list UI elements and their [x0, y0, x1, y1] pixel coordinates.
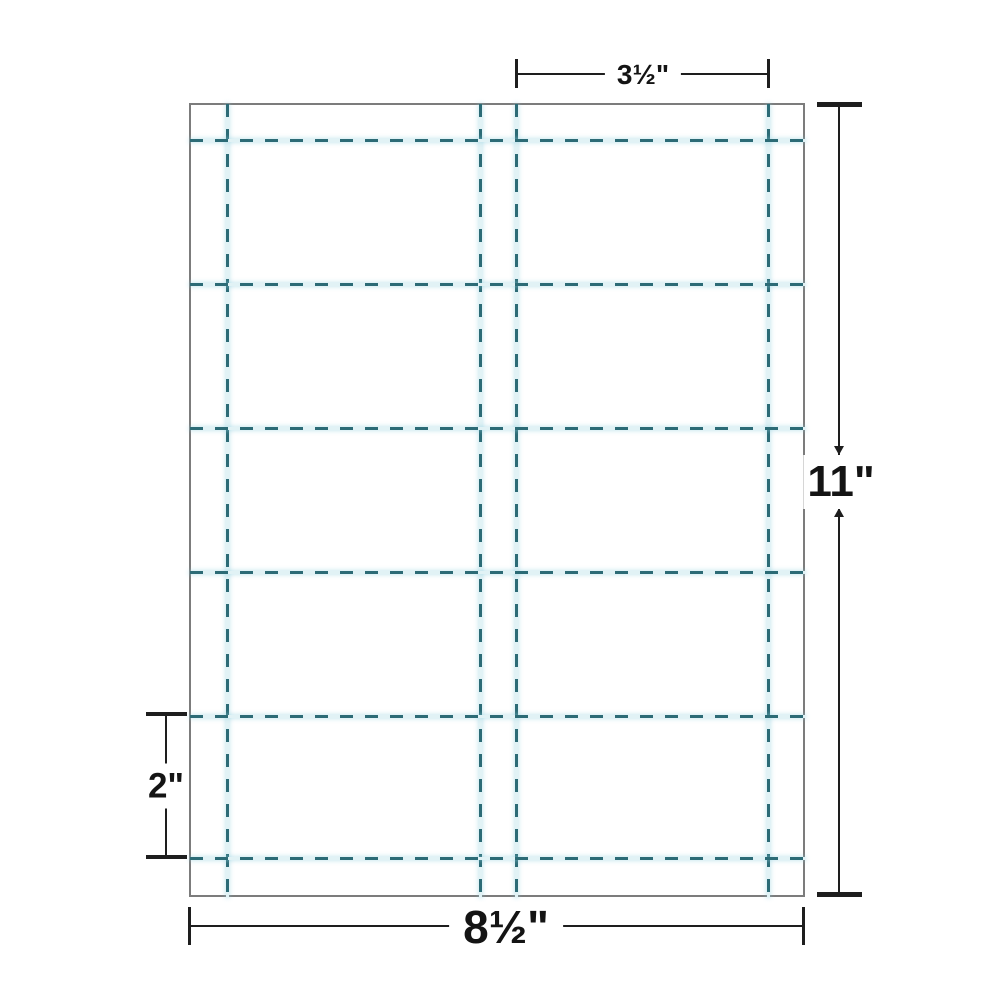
dimension-label-card-height: 2": [144, 764, 188, 809]
perforation-line-vertical-right-margin: [767, 104, 770, 897]
arrow-up-icon: [834, 508, 844, 517]
dimension-label-sheet-height: 11": [803, 455, 878, 509]
dimension-cap-card-height-top: [146, 712, 187, 716]
business-card-template-diagram: 3½" 11" 2" 8½": [0, 0, 1000, 1000]
perforation-line-horizontal-row-4: [190, 715, 805, 718]
dimension-cap-card-height-bottom: [146, 855, 187, 859]
arrow-down-icon: [834, 446, 844, 455]
dimension-tick-sheet-width-left: [188, 907, 191, 945]
dimension-label-card-width: 3½": [605, 59, 681, 91]
perforation-line-vertical-center-right: [515, 104, 518, 897]
perforation-line-vertical-left-margin: [226, 104, 229, 897]
dimension-cap-sheet-height-top: [817, 102, 862, 107]
perforation-line-horizontal-row-2: [190, 427, 805, 430]
perforation-line-horizontal-row-0: [190, 139, 805, 142]
dimension-tick-sheet-width-right: [802, 907, 805, 945]
perforation-line-horizontal-row-5: [190, 857, 805, 860]
dimension-label-sheet-width: 8½": [449, 902, 563, 952]
dimension-tick-card-width-right: [767, 59, 770, 88]
dimension-tick-card-width-left: [515, 59, 518, 88]
sheet-outline: [189, 103, 805, 897]
perforation-line-horizontal-row-3: [190, 571, 805, 574]
perforation-line-vertical-center-left: [479, 104, 482, 897]
dimension-cap-sheet-height-bottom: [817, 892, 862, 897]
perforation-line-horizontal-row-1: [190, 283, 805, 286]
